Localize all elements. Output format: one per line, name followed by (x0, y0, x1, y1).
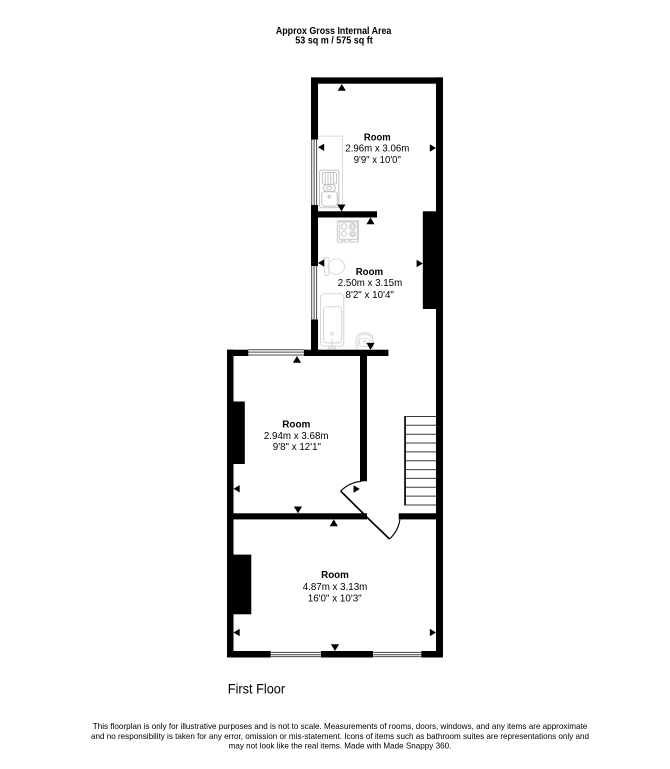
svg-text:and no responsibility is taken: and no responsibility is taken for any e… (91, 732, 589, 741)
svg-text:9'8" x 12'1": 9'8" x 12'1" (273, 441, 321, 453)
svg-text:53 sq m / 575 sq ft: 53 sq m / 575 sq ft (295, 35, 373, 47)
svg-text:This floorplan is only for ill: This floorplan is only for illustrative … (93, 722, 588, 731)
svg-text:2.50m x 3.15m: 2.50m x 3.15m (338, 277, 403, 289)
svg-text:may not look like the real ite: may not look like the real items. Made w… (229, 741, 452, 750)
svg-text:4.87m x 3.13m: 4.87m x 3.13m (303, 581, 368, 593)
svg-text:First Floor: First Floor (228, 681, 286, 697)
svg-text:Room: Room (321, 569, 349, 581)
svg-text:8'2" x 10'4": 8'2" x 10'4" (346, 289, 395, 301)
svg-text:16'0" x 10'3": 16'0" x 10'3" (308, 593, 362, 605)
svg-text:2.96m x 3.06m: 2.96m x 3.06m (345, 143, 409, 155)
svg-text:Room: Room (282, 419, 310, 431)
svg-text:9'9" x 10'0": 9'9" x 10'0" (354, 154, 401, 166)
